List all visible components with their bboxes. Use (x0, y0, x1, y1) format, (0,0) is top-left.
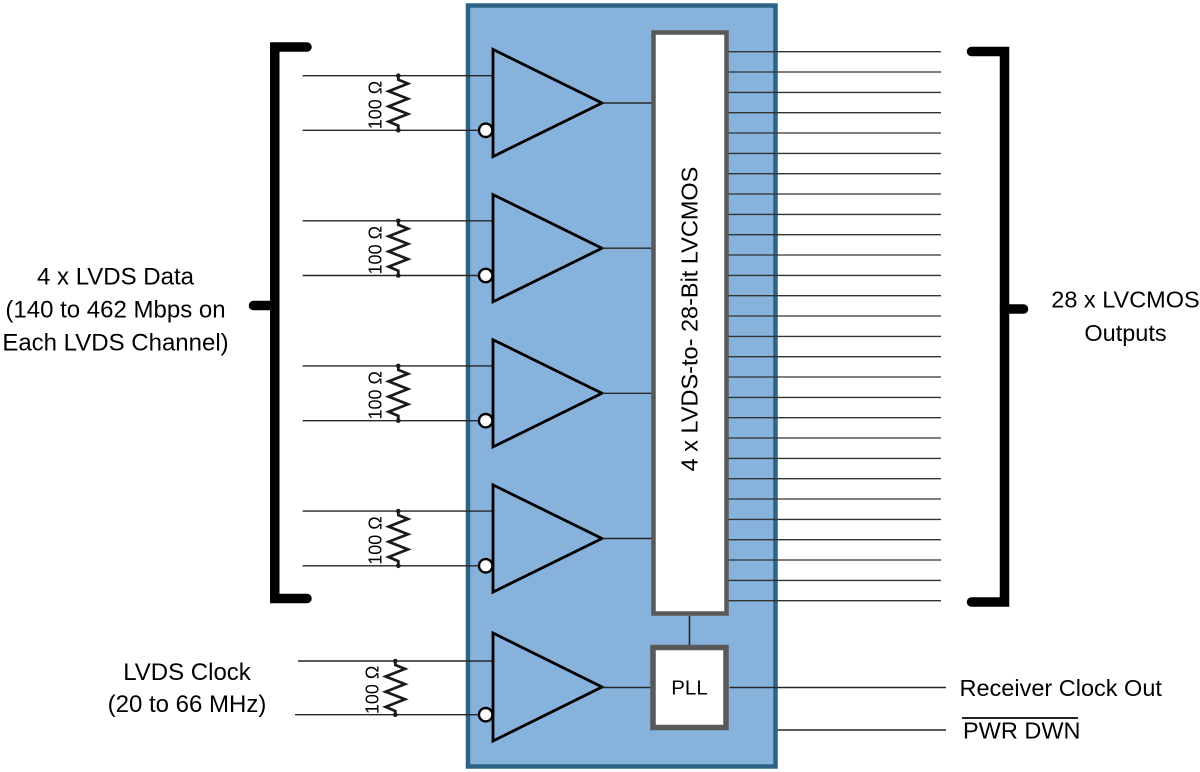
svg-text:Each LVDS Channel): Each LVDS Channel) (2, 330, 228, 357)
svg-text:PLL: PLL (671, 676, 707, 699)
svg-text:4 x LVDS Data: 4 x LVDS Data (37, 264, 195, 291)
svg-text:100 Ω: 100 Ω (366, 371, 386, 420)
svg-text:4 x LVDS-to- 28-Bit LVCMOS: 4 x LVDS-to- 28-Bit LVCMOS (677, 167, 703, 472)
svg-text:LVDS Clock: LVDS Clock (123, 659, 252, 686)
svg-text:(20 to 66 MHz): (20 to 66 MHz) (108, 691, 267, 718)
svg-text:PWR DWN: PWR DWN (963, 718, 1080, 744)
svg-text:28 x LVCMOS: 28 x LVCMOS (1051, 287, 1199, 313)
svg-text:100 Ω: 100 Ω (366, 516, 386, 565)
svg-text:Receiver Clock Out: Receiver Clock Out (960, 675, 1163, 701)
svg-text:(140 to 462 Mbps on: (140 to 462 Mbps on (5, 297, 225, 324)
svg-text:Outputs: Outputs (1084, 320, 1166, 346)
svg-text:100 Ω: 100 Ω (366, 81, 386, 130)
svg-text:100 Ω: 100 Ω (363, 666, 383, 715)
svg-text:100 Ω: 100 Ω (366, 226, 386, 275)
